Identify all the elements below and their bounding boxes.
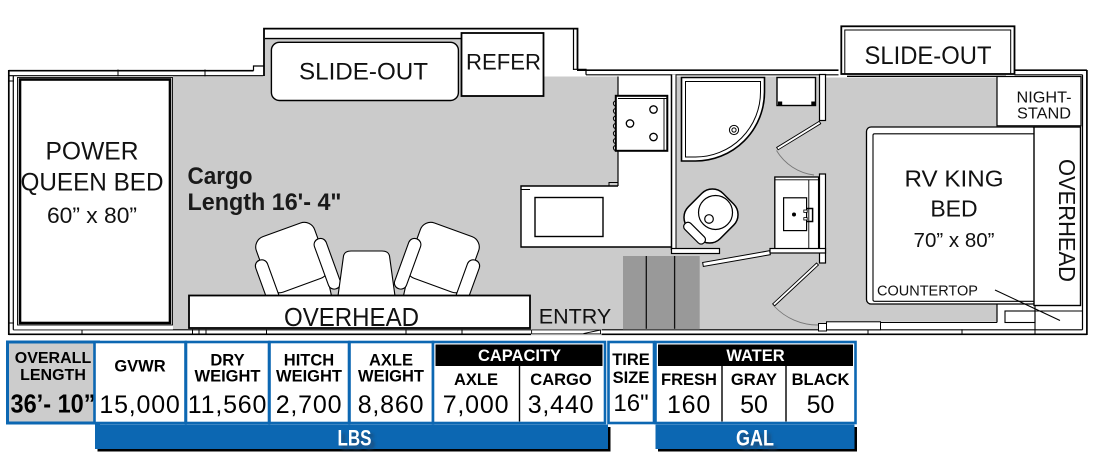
svg-text:50: 50 <box>740 391 768 419</box>
svg-text:REFER: REFER <box>466 50 541 75</box>
svg-text:QUEEN BED: QUEEN BED <box>21 169 164 197</box>
svg-text:Length 16'- 4": Length 16'- 4" <box>188 189 342 216</box>
svg-text:CAPACITY: CAPACITY <box>478 347 561 365</box>
svg-text:SLIDE-OUT: SLIDE-OUT <box>299 59 428 86</box>
svg-text:70” x 80”: 70” x 80” <box>914 229 995 252</box>
svg-text:AXLE: AXLE <box>454 371 498 389</box>
svg-text:SIZE: SIZE <box>613 369 650 387</box>
svg-text:7,000: 7,000 <box>443 391 510 419</box>
svg-text:WEIGHT: WEIGHT <box>276 368 342 386</box>
svg-text:LENGTH: LENGTH <box>20 367 86 384</box>
svg-text:2,700: 2,700 <box>276 391 343 419</box>
svg-text:WEIGHT: WEIGHT <box>195 368 261 386</box>
svg-text:TIRE: TIRE <box>612 351 650 369</box>
svg-text:36’- 10”: 36’- 10” <box>11 389 96 419</box>
svg-text:STAND: STAND <box>1017 106 1071 123</box>
svg-text:GAL: GAL <box>736 426 774 451</box>
svg-text:8,860: 8,860 <box>358 391 425 419</box>
svg-text:Cargo: Cargo <box>188 163 253 190</box>
svg-text:RV KING: RV KING <box>905 166 1004 192</box>
svg-text:50: 50 <box>807 391 835 419</box>
svg-text:SLIDE-OUT: SLIDE-OUT <box>865 42 992 70</box>
svg-text:3,440: 3,440 <box>528 391 595 419</box>
svg-text:60” x 80”: 60” x 80” <box>47 203 137 228</box>
svg-text:OVERHEAD: OVERHEAD <box>1054 159 1080 282</box>
svg-text:COUNTERTOP: COUNTERTOP <box>877 284 978 300</box>
svg-text:FRESH: FRESH <box>661 371 717 389</box>
svg-text:ENTRY: ENTRY <box>539 305 611 329</box>
svg-text:BED: BED <box>930 196 977 222</box>
svg-text:160: 160 <box>667 391 711 419</box>
svg-text:CARGO: CARGO <box>530 371 592 389</box>
svg-text:POWER: POWER <box>46 138 139 166</box>
svg-text:WEIGHT: WEIGHT <box>358 368 424 386</box>
svg-text:16": 16" <box>613 390 648 417</box>
svg-text:BLACK: BLACK <box>792 371 850 389</box>
svg-text:WATER: WATER <box>726 347 784 365</box>
svg-text:OVERHEAD: OVERHEAD <box>284 302 419 332</box>
svg-text:11,560: 11,560 <box>188 391 267 419</box>
svg-text:GVWR: GVWR <box>114 358 165 376</box>
svg-text:NIGHT-: NIGHT- <box>1017 90 1072 107</box>
svg-text:OVERALL: OVERALL <box>15 350 92 367</box>
svg-text:GRAY: GRAY <box>731 371 777 389</box>
svg-text:LBS: LBS <box>338 426 372 451</box>
svg-text:15,000: 15,000 <box>99 391 180 419</box>
